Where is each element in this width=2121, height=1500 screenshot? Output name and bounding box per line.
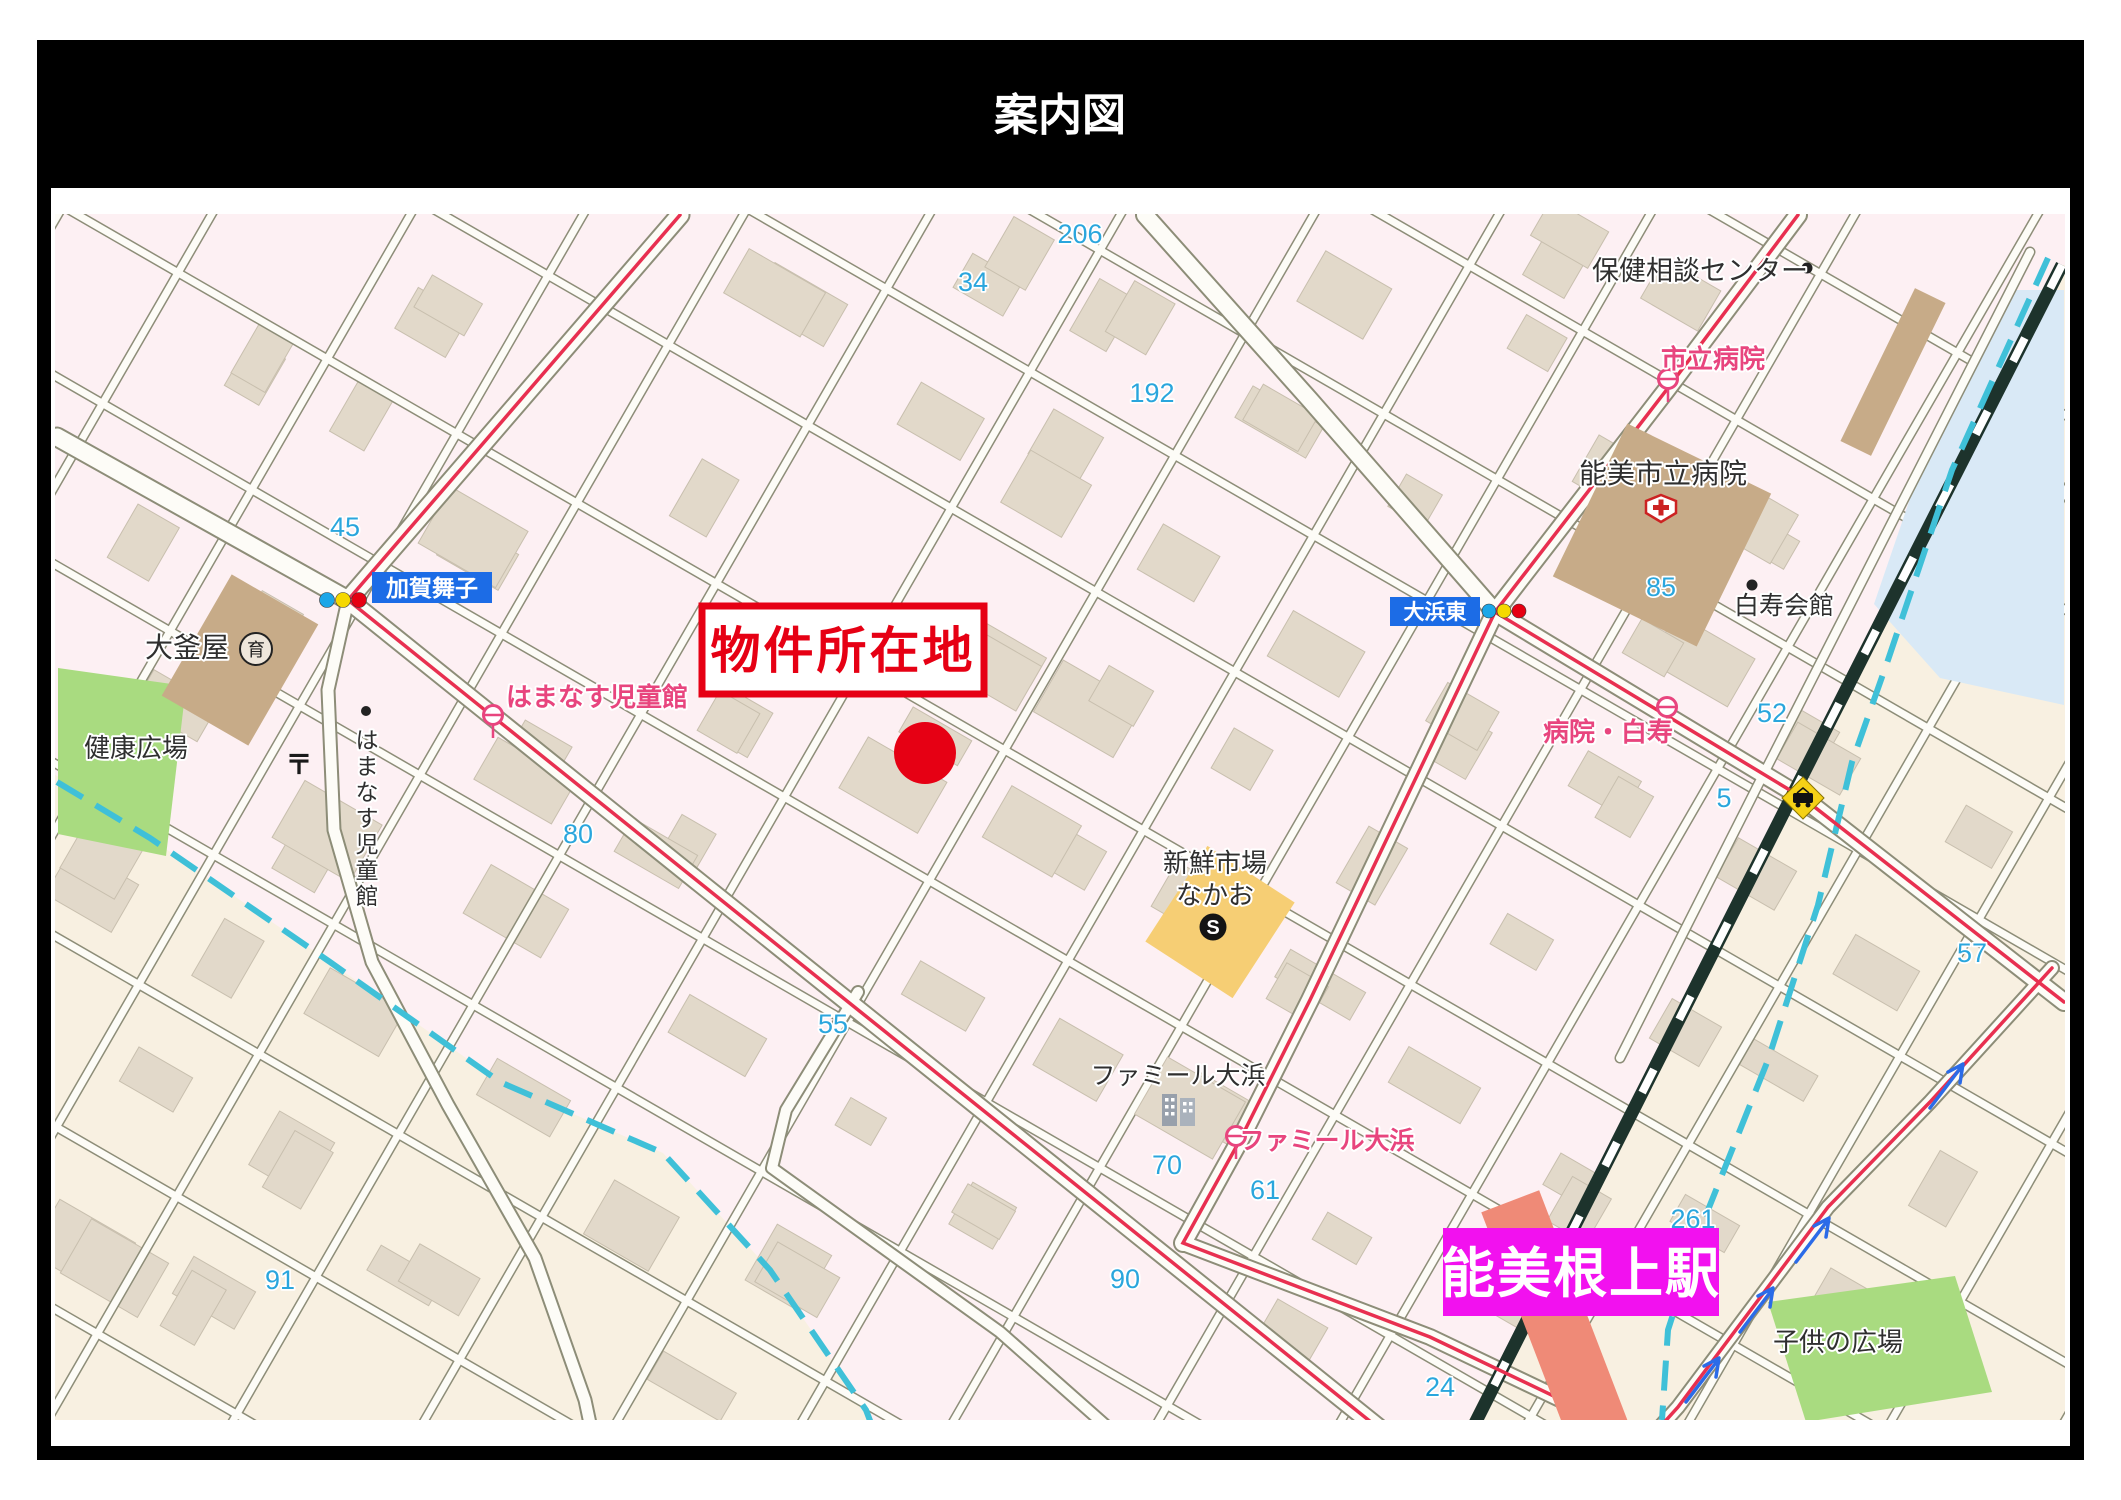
- vertical-char: な: [356, 779, 379, 805]
- label-bus-stop-shiritsu-byoin: 市立病院: [1661, 344, 1765, 374]
- block-number: 206: [1057, 219, 1102, 249]
- vertical-char: 館: [356, 883, 379, 909]
- block-number: 45: [330, 512, 360, 542]
- property-location-callout: 物件所在地: [702, 606, 984, 694]
- label-kodomo-no-hiroba: 子供の広場: [1773, 1327, 1903, 1357]
- block-number: 70: [1152, 1150, 1182, 1180]
- block-number: 57: [1957, 938, 1987, 968]
- block-number: 192: [1129, 378, 1174, 408]
- label-nomi-shiritsu-byoin: 能美市立病院: [1579, 458, 1747, 489]
- vertical-char: 童: [356, 857, 379, 883]
- post-office-icon: 〒: [286, 750, 313, 780]
- page-title: 案内図: [994, 91, 1126, 140]
- label-hamanasu-jidokan-vertical: は ま な す 児 童 館: [356, 727, 379, 909]
- block-number: 24: [1425, 1372, 1455, 1402]
- label-shinsen-ichiba-line2: なかお: [1176, 880, 1254, 910]
- block-number: 61: [1250, 1175, 1280, 1205]
- block-number: 34: [958, 267, 988, 297]
- map-canvas: 育 S 〒 保健相談センター 市立病院 能美市立病院 白寿会館 病院・白寿 大釜…: [0, 0, 2121, 1500]
- label-hakuju-kaikan: 白寿会館: [1734, 592, 1834, 620]
- guide-map-page: 育 S 〒 保健相談センター 市立病院 能美市立病院 白寿会館 病院・白寿 大釜…: [0, 0, 2121, 1500]
- label-bus-stop-hamanasu-jidokan: はまなす児童館: [506, 682, 688, 712]
- vertical-char: す: [356, 805, 379, 831]
- poi-dot: [1747, 580, 1758, 591]
- block-number: 80: [563, 819, 593, 849]
- frame-left: [37, 188, 51, 1460]
- block-number: 85: [1646, 572, 1676, 602]
- label-kenko-hiroba: 健康広場: [84, 733, 188, 763]
- intersection-sign-kaga-maiko: 加賀舞子: [372, 572, 492, 603]
- label-okamaya: 大釜屋: [145, 632, 229, 663]
- label-bus-stop-famille-ohama: ファミール大浜: [1239, 1127, 1414, 1155]
- property-marker: [894, 722, 956, 784]
- traffic-light-icon: [320, 593, 367, 608]
- property-location-label: 物件所在地: [711, 621, 976, 680]
- frame-bottom: [37, 1446, 2084, 1460]
- vertical-char: 児: [356, 831, 379, 857]
- label-shinsen-ichiba-line1: 新鮮市場: [1163, 848, 1267, 878]
- block-number: 5: [1716, 783, 1731, 813]
- block-number: 55: [818, 1009, 848, 1039]
- label-famille-ohama: ファミール大浜: [1090, 1062, 1265, 1090]
- block-number: 90: [1110, 1264, 1140, 1294]
- intersection-sign-label: 大浜東: [1404, 601, 1467, 624]
- label-bus-stop-byoin-hakuju: 病院・白寿: [1543, 717, 1673, 747]
- vertical-char: は: [356, 727, 379, 753]
- supermarket-badge-char: S: [1206, 917, 1219, 939]
- nursery-badge-icon: 育: [240, 633, 272, 665]
- block-number: 91: [265, 1265, 295, 1295]
- vertical-char: ま: [356, 753, 379, 779]
- frame-right: [2070, 188, 2084, 1460]
- intersection-sign-label: 加賀舞子: [385, 575, 478, 601]
- poi-dot: [361, 706, 371, 716]
- station-name-label: 能美根上駅: [1441, 1241, 1721, 1305]
- supermarket-badge-icon: S: [1200, 914, 1227, 941]
- station-name-callout: 能美根上駅: [1441, 1228, 1721, 1316]
- label-hoken-soudan-center: 保健相談センター: [1592, 256, 1808, 286]
- traffic-light-icon: [1482, 604, 1526, 618]
- map-area: 育 S 〒 保健相談センター 市立病院 能美市立病院 白寿会館 病院・白寿 大釜…: [0, 0, 2121, 1500]
- nursery-badge-char: 育: [247, 640, 265, 660]
- block-number: 52: [1757, 698, 1787, 728]
- intersection-sign-ohama-higashi: 大浜東: [1390, 597, 1480, 626]
